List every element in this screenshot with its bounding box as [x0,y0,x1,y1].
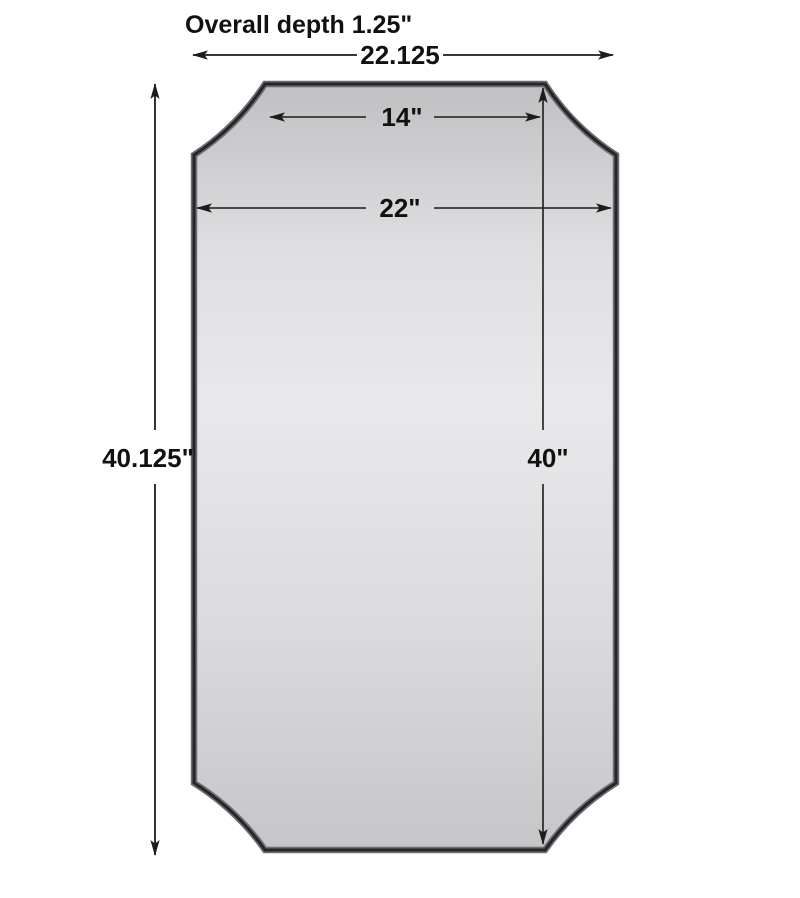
overall-width-label: 22.125 [360,40,440,70]
mirror-height-label: 40" [527,443,568,473]
top-width-label: 14" [381,102,422,132]
overall-depth-label: Overall depth 1.25" [185,11,412,39]
mirror-width-label: 22" [379,193,420,223]
overall-height-label: 40.125" [102,443,194,473]
dimension-diagram: Overall depth 1.25" 22.125 14" 22" 40.12… [0,0,800,898]
overall-height-dimension: 40.125" [102,84,194,855]
diagram-canvas: Overall depth 1.25" 22.125 14" 22" 40.12… [0,0,800,898]
overall-width-dimension: 22.125 [193,40,613,70]
